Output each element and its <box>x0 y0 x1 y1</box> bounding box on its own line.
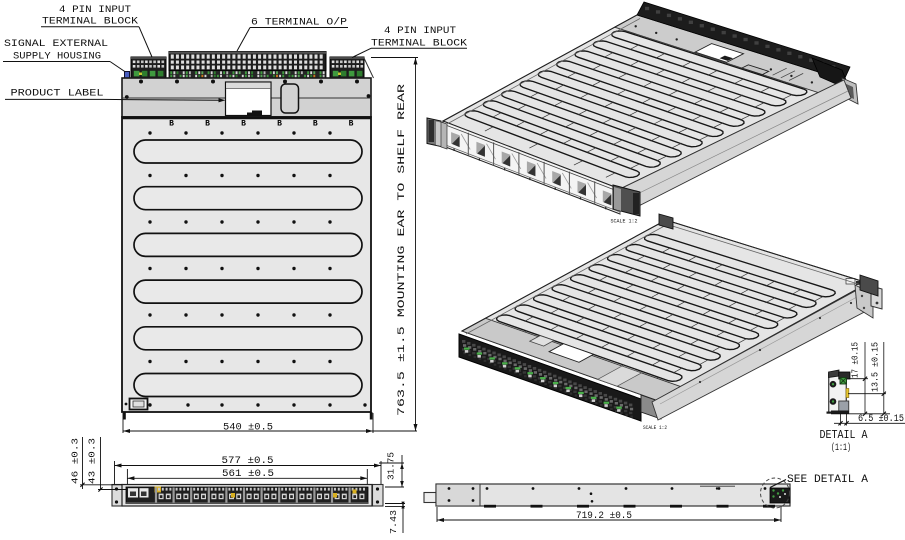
svg-text:B: B <box>277 120 282 129</box>
svg-text:B: B <box>169 120 174 129</box>
svg-text:43 ±0.3: 43 ±0.3 <box>87 438 98 484</box>
svg-text:577 ±0.5: 577 ±0.5 <box>222 455 274 467</box>
svg-text:PRODUCT LABEL: PRODUCT LABEL <box>11 89 104 100</box>
svg-text:13.5 ±0.15: 13.5 ±0.15 <box>870 342 881 392</box>
svg-text:7.43: 7.43 <box>388 510 399 534</box>
svg-text:540 ±0.5: 540 ±0.5 <box>223 421 273 433</box>
svg-text:SCALE 1:2: SCALE 1:2 <box>643 424 667 431</box>
svg-text:TERMINAL BLOCK: TERMINAL BLOCK <box>42 17 138 28</box>
svg-text:(1:1): (1:1) <box>831 442 851 454</box>
svg-text:B: B <box>313 120 318 129</box>
svg-text:4 PIN INPUT: 4 PIN INPUT <box>59 5 131 16</box>
svg-text:763.5 ±1.5 MOUNTING EAR TO SH: 763.5 ±1.5 MOUNTING EAR TO SHELF REAR <box>397 84 408 416</box>
svg-text:B: B <box>241 120 246 129</box>
svg-text:DETAIL A: DETAIL A <box>820 428 869 442</box>
svg-text:31.75: 31.75 <box>386 452 397 480</box>
svg-text:561 ±0.5: 561 ±0.5 <box>222 468 274 480</box>
svg-text:17 ±0.15: 17 ±0.15 <box>850 342 861 378</box>
svg-text:SIGNAL EXTERNAL: SIGNAL EXTERNAL <box>4 39 108 50</box>
svg-text:SCALE 1:2: SCALE 1:2 <box>611 218 638 225</box>
svg-text:B: B <box>205 120 210 129</box>
svg-text:4 PIN INPUT: 4 PIN INPUT <box>384 26 456 37</box>
svg-text:SEE DETAIL A: SEE DETAIL A <box>787 474 868 486</box>
svg-text:B: B <box>349 120 354 129</box>
svg-text:SUPPLY HOUSING: SUPPLY HOUSING <box>13 52 101 63</box>
svg-text:6.5 ±0.15: 6.5 ±0.15 <box>858 414 904 425</box>
svg-text:6 TERMINAL O/P: 6 TERMINAL O/P <box>251 17 347 29</box>
svg-text:46 ±0.3: 46 ±0.3 <box>70 438 81 484</box>
svg-text:719.2 ±0.5: 719.2 ±0.5 <box>576 510 632 522</box>
